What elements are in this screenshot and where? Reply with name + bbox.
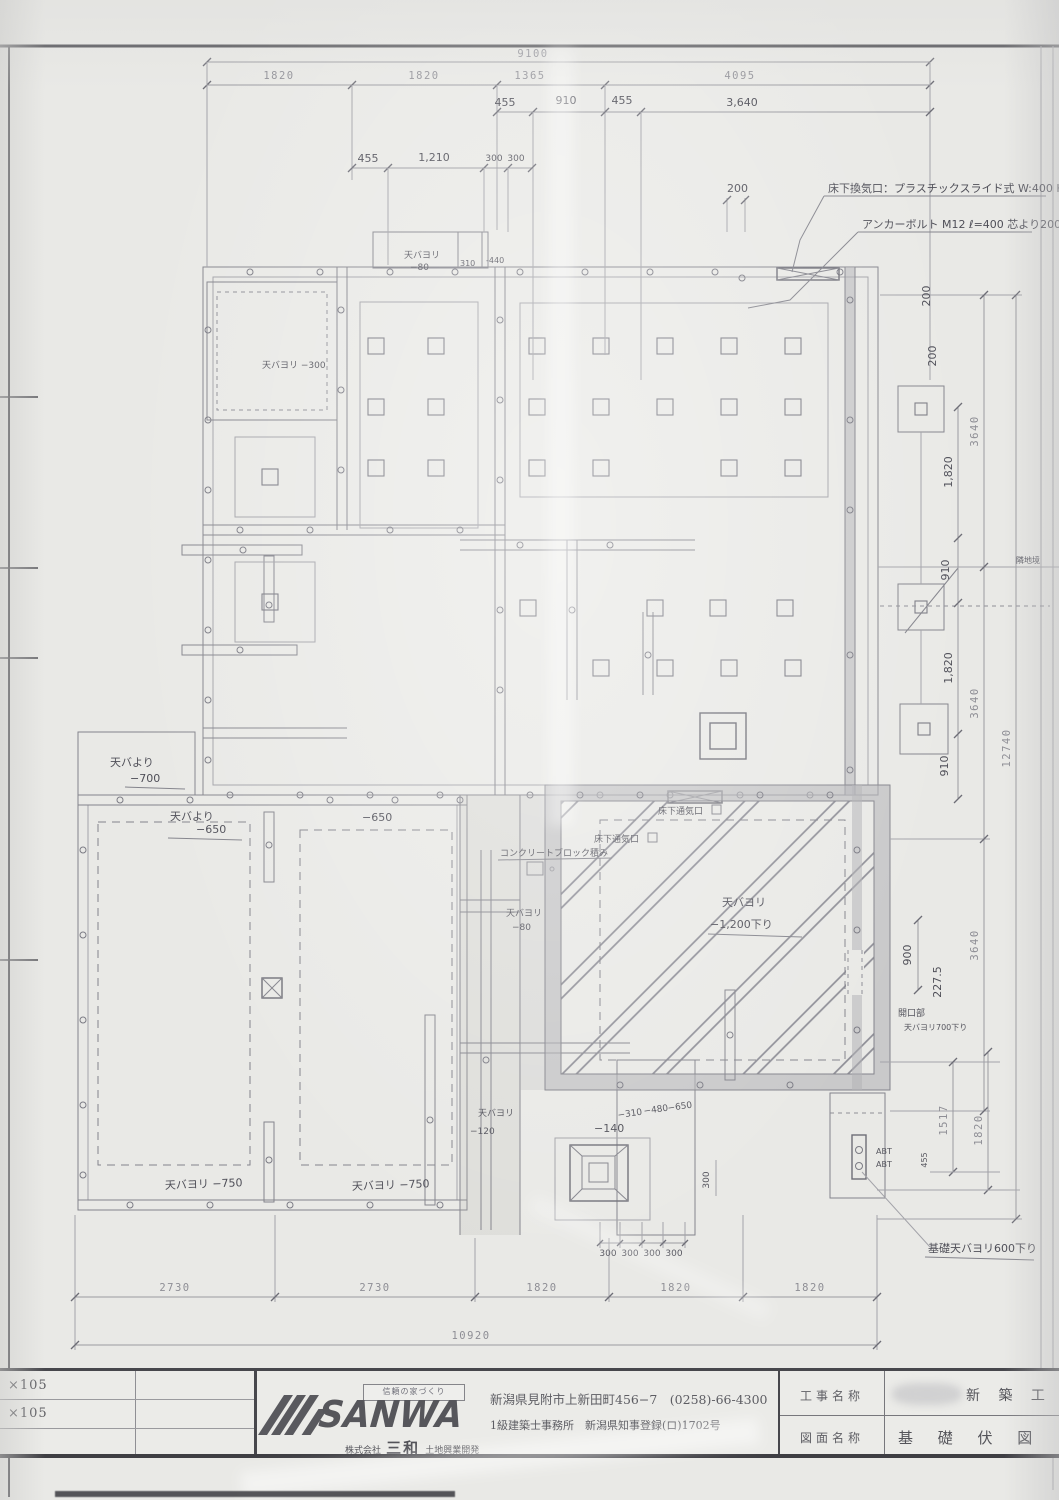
dim-hand-440: -440 <box>486 256 504 265</box>
sanwa-logo-text: SANWA <box>317 1393 465 1436</box>
company-address: 新潟県見附市上新田町456−7 (0258)-66-4300 <box>490 1389 768 1408</box>
dim-bot-1820c: 1820 <box>794 1282 825 1294</box>
note-block: コンクリートブロック積み <box>500 847 608 859</box>
spec-row-3 <box>0 1429 254 1454</box>
note-edge: 隣地境 <box>1016 555 1040 565</box>
note-tenba-300: 天バヨリ −300 <box>262 360 326 371</box>
note-tenba-650-2: −650 <box>196 823 226 836</box>
dim-right-overall: 12740 <box>1001 728 1013 767</box>
title-block-fields: 工事名称 図面名称 新 築 工 基 礎 伏 図 <box>778 1371 1059 1454</box>
dim-hand-910a: 910 <box>556 94 577 107</box>
lower-right-zone <box>545 785 890 1090</box>
note-tenba-650-1: 天バより <box>170 810 214 823</box>
foundation-vent-symbols <box>668 268 839 803</box>
dimensions-top: 9100 1820 1820 1365 4095 455 910 455 <box>203 48 934 380</box>
hatched-room-top-left <box>207 282 337 420</box>
dim-right-1820: 1820 <box>973 1114 985 1145</box>
dim-bot-1820a: 1820 <box>526 1282 557 1294</box>
note-tenba-80-mid-2: −80 <box>512 923 531 933</box>
field-divider-h <box>780 1415 1059 1416</box>
note-opening-2: 天バヨリ700下り <box>904 1023 967 1032</box>
handwritten-notes: 床下換気口：プラスチックスライド式 W:400 H:200 アンカーボルト M1… <box>110 181 1059 1260</box>
upper-building-outline <box>182 267 878 795</box>
note-minus-310: −310 <box>617 1108 643 1121</box>
dim-bot-2730b: 2730 <box>359 1282 390 1294</box>
dim-hand-3640: 3,640 <box>726 96 758 109</box>
bottom-pit <box>555 1138 650 1220</box>
dim-right-1517: 1517 <box>938 1104 950 1135</box>
dim-hand-900: 900 <box>901 945 914 966</box>
dim-top-1365: 1365 <box>514 70 545 82</box>
foundation-plan-drawing: 9100 1820 1820 1365 4095 455 910 455 <box>0 0 1059 1500</box>
dim-pit-300-2: 300 <box>621 1249 638 1259</box>
note-tenba-120-1: 天バヨリ <box>478 1108 514 1119</box>
dim-hand-200-r2: 200 <box>926 346 939 367</box>
note-minus-480: −480 <box>643 1104 669 1117</box>
dim-pit-300-3: 300 <box>643 1249 660 1259</box>
dim-hand-200-top: 200 <box>727 182 748 195</box>
note-tenba-700-1: 天バより <box>110 756 154 769</box>
dim-top-overall: 9100 <box>517 48 548 60</box>
spec-row-2: ×105 <box>0 1400 254 1429</box>
dim-hand-right-1820a: 1,820 <box>942 456 955 488</box>
column-footing-pads <box>262 338 801 676</box>
dim-hand-455d: 455 <box>920 1152 929 1167</box>
company-license: 1級建築士事務所 新潟県知事登録(ロ)1702号 <box>490 1417 721 1433</box>
dim-pit-300-4: 300 <box>665 1249 682 1259</box>
dim-hand-1210: 1,210 <box>418 151 450 164</box>
note-tenba-1200-2: −1,200下り <box>710 918 773 931</box>
company-address-area: 新潟県見附市上新田町456−7 (0258)-66-4300 1級建築士事務所 … <box>480 1371 776 1454</box>
note-abt-1: ABT <box>876 1147 892 1156</box>
dim-pit-300-1: 300 <box>599 1249 616 1259</box>
dim-hand-455c: 455 <box>358 152 379 165</box>
dim-hand-455a: 455 <box>495 96 516 109</box>
dim-hand-300b: 300 <box>507 154 524 164</box>
dim-bot-overall: 10920 <box>451 1330 490 1342</box>
spec-row-1: ×105 <box>0 1371 254 1400</box>
note-tenba-80-mid-1: 天バヨリ <box>506 908 542 919</box>
redacted-client-name <box>892 1383 962 1405</box>
lower-left-zone <box>78 732 467 1210</box>
dim-hand-300a: 300 <box>485 154 502 164</box>
note-tenba-700-2: −700 <box>130 772 160 785</box>
note-tenba-80-top-2: −80 <box>410 263 429 273</box>
dim-right-3640c: 3640 <box>969 929 981 960</box>
note-tenba-750-a: 天バヨリ −750 <box>165 1176 243 1192</box>
title-block-spec-table: ×105 ×105 <box>0 1371 257 1454</box>
company-suffix: 土地興業開発 <box>425 1446 479 1456</box>
dim-right-3640a: 3640 <box>969 415 981 446</box>
project-name-value: 新 築 工 <box>966 1385 1052 1405</box>
scanned-foundation-plan-sheet: 9100 1820 1820 1365 4095 455 910 455 <box>0 0 1059 1500</box>
note-tenba-1200-1: 天バヨリ <box>722 896 766 909</box>
company-logo-area: 信頼の家づくり SANWA 株式会社 三和 土地興業開発 <box>257 1371 480 1454</box>
drawing-name-value: 基 礎 伏 図 <box>898 1427 1042 1448</box>
note-anchor: アンカーボルト M12 ℓ=400 芯より200通り <box>862 217 1059 231</box>
dim-bot-1820b: 1820 <box>660 1282 691 1294</box>
scan-edge-shadow <box>55 1491 455 1497</box>
field-divider-v <box>884 1371 885 1454</box>
company-prefix: 株式会社 <box>345 1446 381 1456</box>
note-tenba-80-top-1: 天バヨリ <box>404 250 440 261</box>
spec-value-1: ×105 <box>8 1378 48 1393</box>
note-foundation-600: 基礎天バヨリ600下り <box>928 1242 1037 1255</box>
title-block: ×105 ×105 信頼の家づくり SANWA 株式会社 三和 土地興業開発 新… <box>0 1368 1059 1458</box>
company-main: 三和 <box>386 1439 420 1457</box>
project-name-label: 工事名称 <box>780 1387 884 1404</box>
note-vent-b: 床下通気口 <box>594 833 639 845</box>
note-opening-1: 開口部 <box>898 1007 925 1019</box>
dim-top-1820a: 1820 <box>263 70 294 82</box>
dim-hand-200-r1: 200 <box>920 286 933 307</box>
dim-hand-310: 310 <box>460 259 475 268</box>
dim-hand-455b: 455 <box>612 94 633 107</box>
dim-right-3640b: 3640 <box>969 687 981 718</box>
note-minus-650: −650 <box>362 811 392 824</box>
note-minus-140: −140 <box>594 1122 624 1135</box>
note-vent: 床下換気口：プラスチックスライド式 W:400 H:200 <box>828 181 1059 195</box>
bottom-right-pier-detail <box>830 1093 930 1247</box>
company-name-line: 株式会社 三和 土地興業開発 <box>345 1437 479 1458</box>
note-tenba-120-2: −120 <box>470 1127 495 1137</box>
sanwa-stripes-icon <box>267 1395 323 1439</box>
dim-hand-right-1820b: 1,820 <box>942 652 955 684</box>
dim-hand-right-910b: 910 <box>938 756 951 777</box>
note-abt-2: ABT <box>876 1160 892 1169</box>
note-tenba-750-b: 天バヨリ −750 <box>352 1177 430 1193</box>
note-minus-650b: −650 <box>667 1101 693 1114</box>
drawing-name-label: 図面名称 <box>780 1429 884 1446</box>
spec-value-2: ×105 <box>8 1406 48 1421</box>
dim-hand-right-910a: 910 <box>939 560 952 581</box>
dim-top-1820b: 1820 <box>408 70 439 82</box>
dim-pit-300-side: 300 <box>702 1171 712 1188</box>
dim-bot-2730a: 2730 <box>159 1282 190 1294</box>
upper-pit <box>700 713 746 759</box>
dim-top-4095: 4095 <box>724 70 755 82</box>
dim-hand-2275: 227.5 <box>931 966 944 998</box>
note-vent-a: 床下通気口 <box>658 805 703 817</box>
